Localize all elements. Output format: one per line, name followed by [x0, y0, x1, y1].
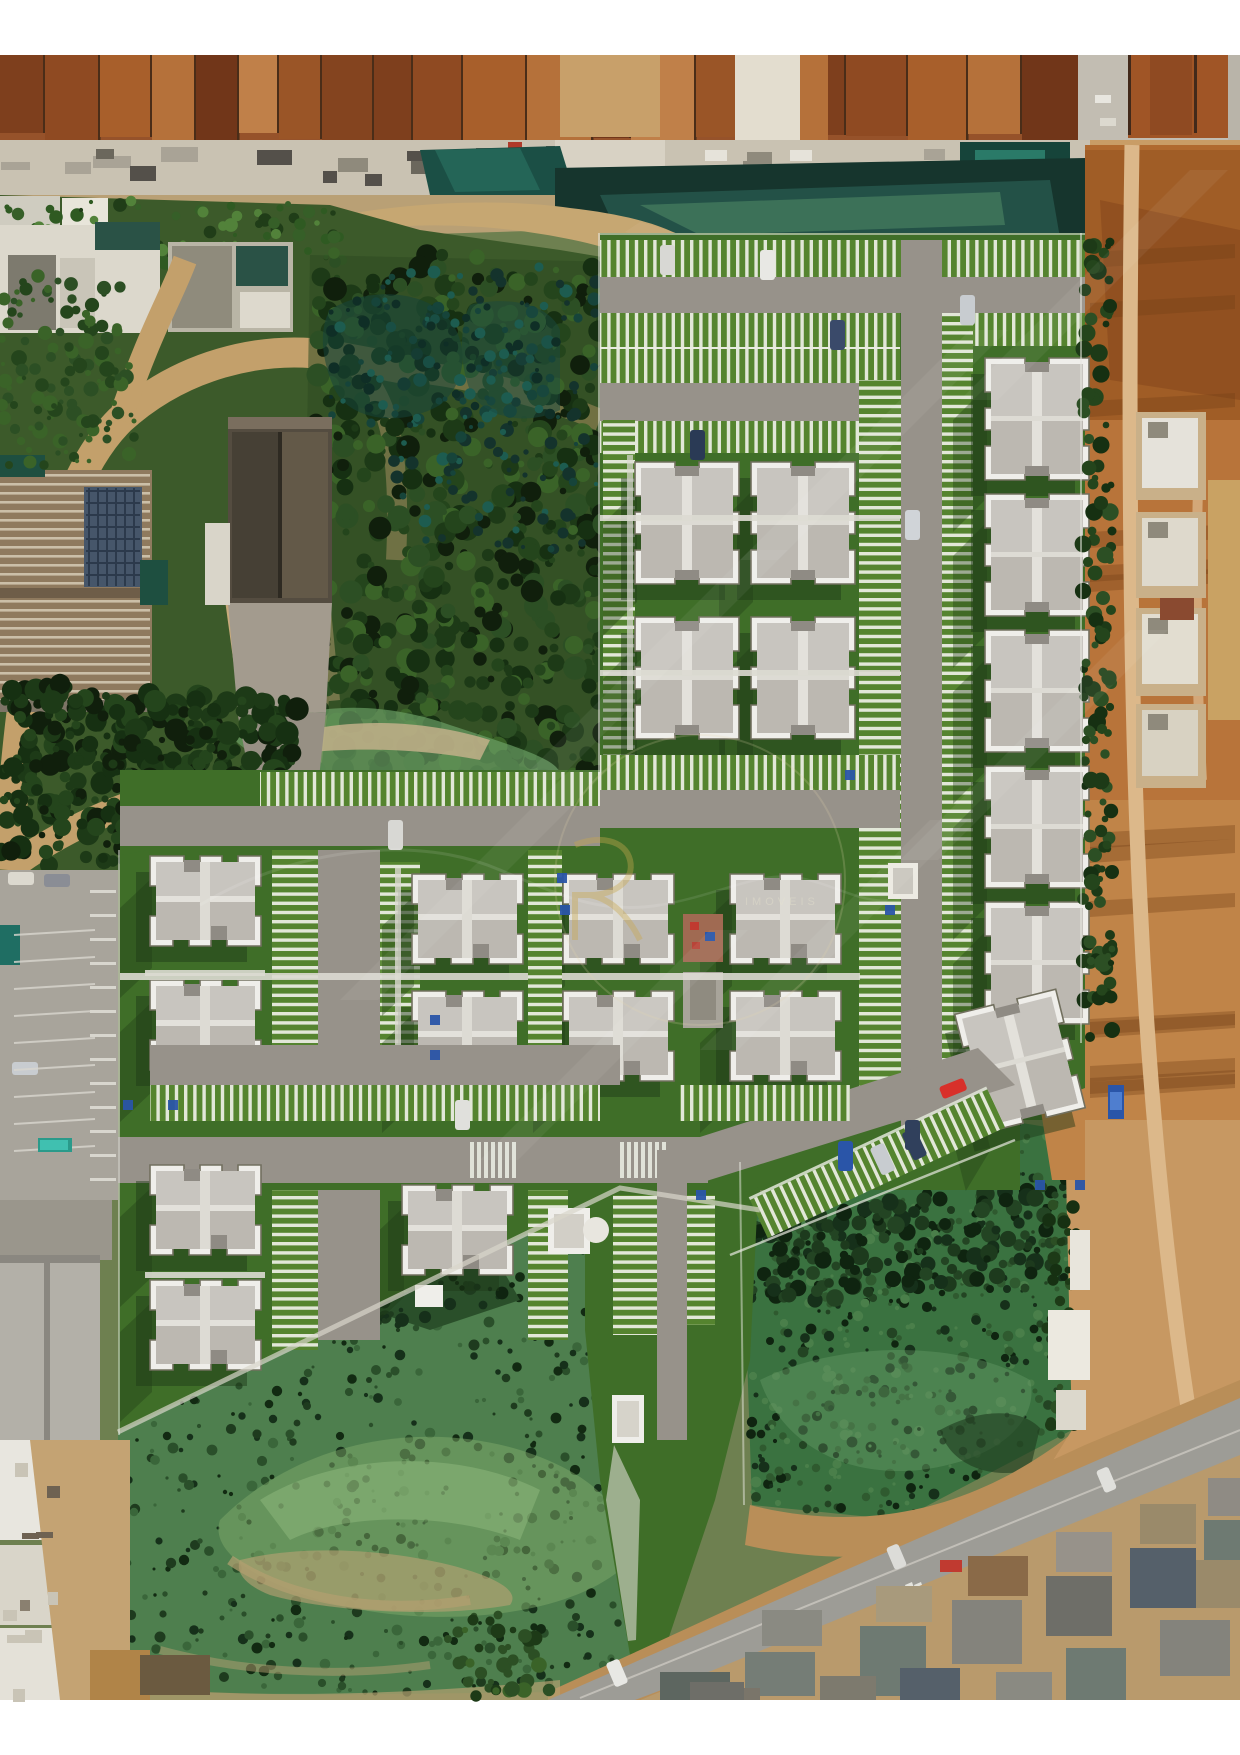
svg-text:IMOVEIS: IMOVEIS: [745, 896, 819, 908]
